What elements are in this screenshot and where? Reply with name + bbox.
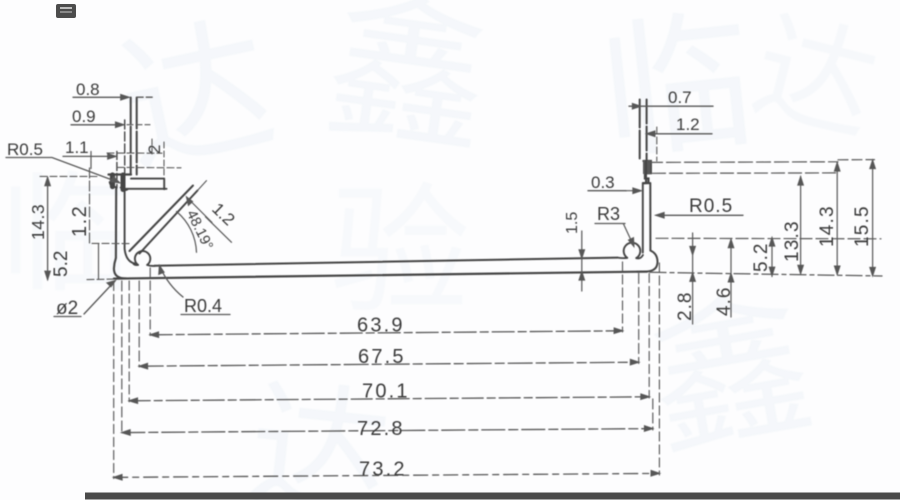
svg-text:67.5: 67.5: [358, 346, 406, 368]
svg-text:5.2: 5.2: [51, 251, 72, 277]
svg-text:0.9: 0.9: [72, 107, 96, 126]
svg-text:0.3: 0.3: [591, 173, 615, 192]
svg-text:15.5: 15.5: [852, 205, 873, 247]
svg-text:2.8: 2.8: [675, 292, 696, 321]
svg-text:72.8: 72.8: [357, 418, 405, 440]
svg-text:1.2: 1.2: [69, 205, 91, 237]
svg-text:1.2: 1.2: [676, 115, 700, 134]
svg-text:鑫: 鑫: [316, 0, 499, 174]
svg-text:R0.5: R0.5: [689, 196, 733, 217]
svg-text:1.1: 1.1: [65, 138, 89, 157]
svg-text:验: 验: [330, 173, 470, 330]
svg-text:0.8: 0.8: [76, 80, 100, 99]
svg-text:5.2: 5.2: [751, 243, 772, 272]
svg-text:ø2: ø2: [56, 298, 78, 319]
svg-text:R0.5: R0.5: [7, 140, 43, 159]
svg-text:2: 2: [145, 145, 164, 154]
svg-text:73.2: 73.2: [359, 459, 407, 481]
svg-text:70.1: 70.1: [362, 381, 410, 403]
svg-text:14.3: 14.3: [28, 204, 48, 240]
svg-text:63.9: 63.9: [357, 315, 405, 337]
svg-text:R0.4: R0.4: [184, 296, 222, 316]
svg-text:13.3: 13.3: [782, 220, 803, 262]
svg-text:R3: R3: [597, 204, 620, 224]
svg-text:0.7: 0.7: [668, 88, 692, 107]
svg-text:4.6: 4.6: [714, 287, 735, 316]
svg-text:1.5: 1.5: [564, 212, 581, 234]
svg-text:14.3: 14.3: [817, 205, 838, 247]
